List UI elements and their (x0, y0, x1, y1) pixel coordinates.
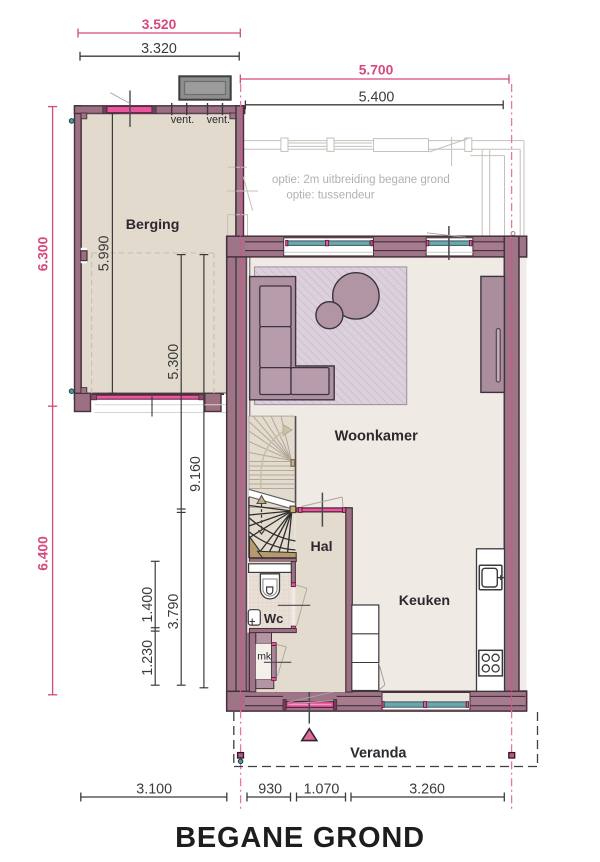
svg-text:3.520: 3.520 (142, 17, 177, 32)
svg-text:Berging: Berging (126, 217, 180, 233)
svg-text:Veranda: Veranda (350, 746, 407, 762)
svg-text:3.790: 3.790 (166, 594, 182, 630)
svg-text:Hal: Hal (310, 539, 332, 555)
svg-text:vent.: vent. (171, 114, 194, 126)
svg-text:6.300: 6.300 (35, 236, 50, 271)
svg-text:Woonkamer: Woonkamer (335, 429, 419, 445)
svg-text:1.070: 1.070 (304, 781, 340, 797)
svg-text:5.300: 5.300 (166, 344, 182, 380)
svg-text:1.400: 1.400 (140, 587, 156, 623)
svg-text:Wc: Wc (264, 611, 284, 626)
svg-text:vent.: vent. (207, 114, 230, 126)
svg-text:optie: 2m uitbreiding begane g: optie: 2m uitbreiding begane grond (272, 174, 450, 186)
svg-text:5.400: 5.400 (359, 90, 395, 106)
svg-text:9.160: 9.160 (188, 456, 204, 492)
svg-text:3.260: 3.260 (409, 781, 445, 797)
svg-text:3.320: 3.320 (141, 41, 177, 57)
svg-text:BEGANE GROND: BEGANE GROND (175, 822, 425, 854)
svg-text:6.400: 6.400 (35, 536, 50, 571)
svg-text:mk: mk (257, 651, 272, 663)
svg-text:5.700: 5.700 (359, 63, 394, 78)
svg-text:1.230: 1.230 (140, 640, 156, 676)
svg-text:3.100: 3.100 (136, 781, 172, 797)
svg-text:930: 930 (258, 781, 282, 797)
svg-text:optie: tussendeur: optie: tussendeur (286, 190, 374, 202)
svg-text:5.990: 5.990 (97, 235, 113, 271)
svg-text:Keuken: Keuken (399, 593, 450, 609)
